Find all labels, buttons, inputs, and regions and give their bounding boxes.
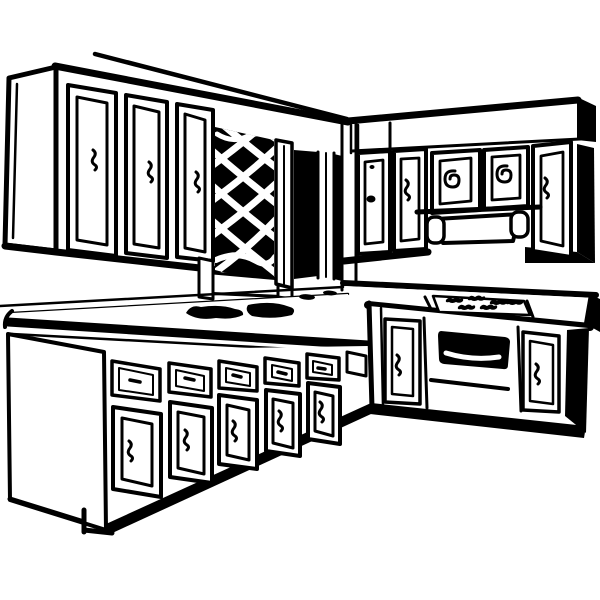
drawer-handle [278, 372, 286, 374]
hood-body [436, 214, 520, 243]
doorway-opening [294, 150, 318, 279]
cabinet-door [68, 85, 116, 256]
cabinet-door [126, 95, 167, 258]
drawer-handle [318, 368, 325, 369]
cabinet-door-tall [533, 142, 571, 257]
base-section [265, 358, 300, 456]
cabinet-door [358, 151, 390, 254]
hood-foot-left [427, 217, 444, 243]
base-side-shadow [565, 328, 589, 433]
base-section [307, 354, 340, 444]
door-knob [367, 196, 376, 203]
cupboard-door [385, 319, 420, 404]
cabinet-door-small [432, 150, 480, 213]
drawer-handle [185, 378, 194, 380]
niche-leg-left [199, 258, 213, 299]
cabinet-door [177, 104, 213, 261]
base-section [219, 361, 257, 469]
cabinet-door [394, 149, 426, 251]
cabinet-side-shadow [577, 144, 595, 263]
cabinet-door-small [484, 147, 528, 209]
cupboard-door [523, 332, 559, 412]
hood-foot-right [511, 212, 528, 237]
base-section [112, 361, 161, 497]
corner-edge [369, 303, 372, 408]
drawer-handle [130, 380, 140, 382]
drawer-handle [233, 375, 241, 377]
base-section [169, 363, 212, 483]
oven-window [438, 331, 510, 369]
kitchen-clipart: Black and white line drawing of a kitche… [0, 0, 600, 600]
door-knob [370, 165, 375, 169]
